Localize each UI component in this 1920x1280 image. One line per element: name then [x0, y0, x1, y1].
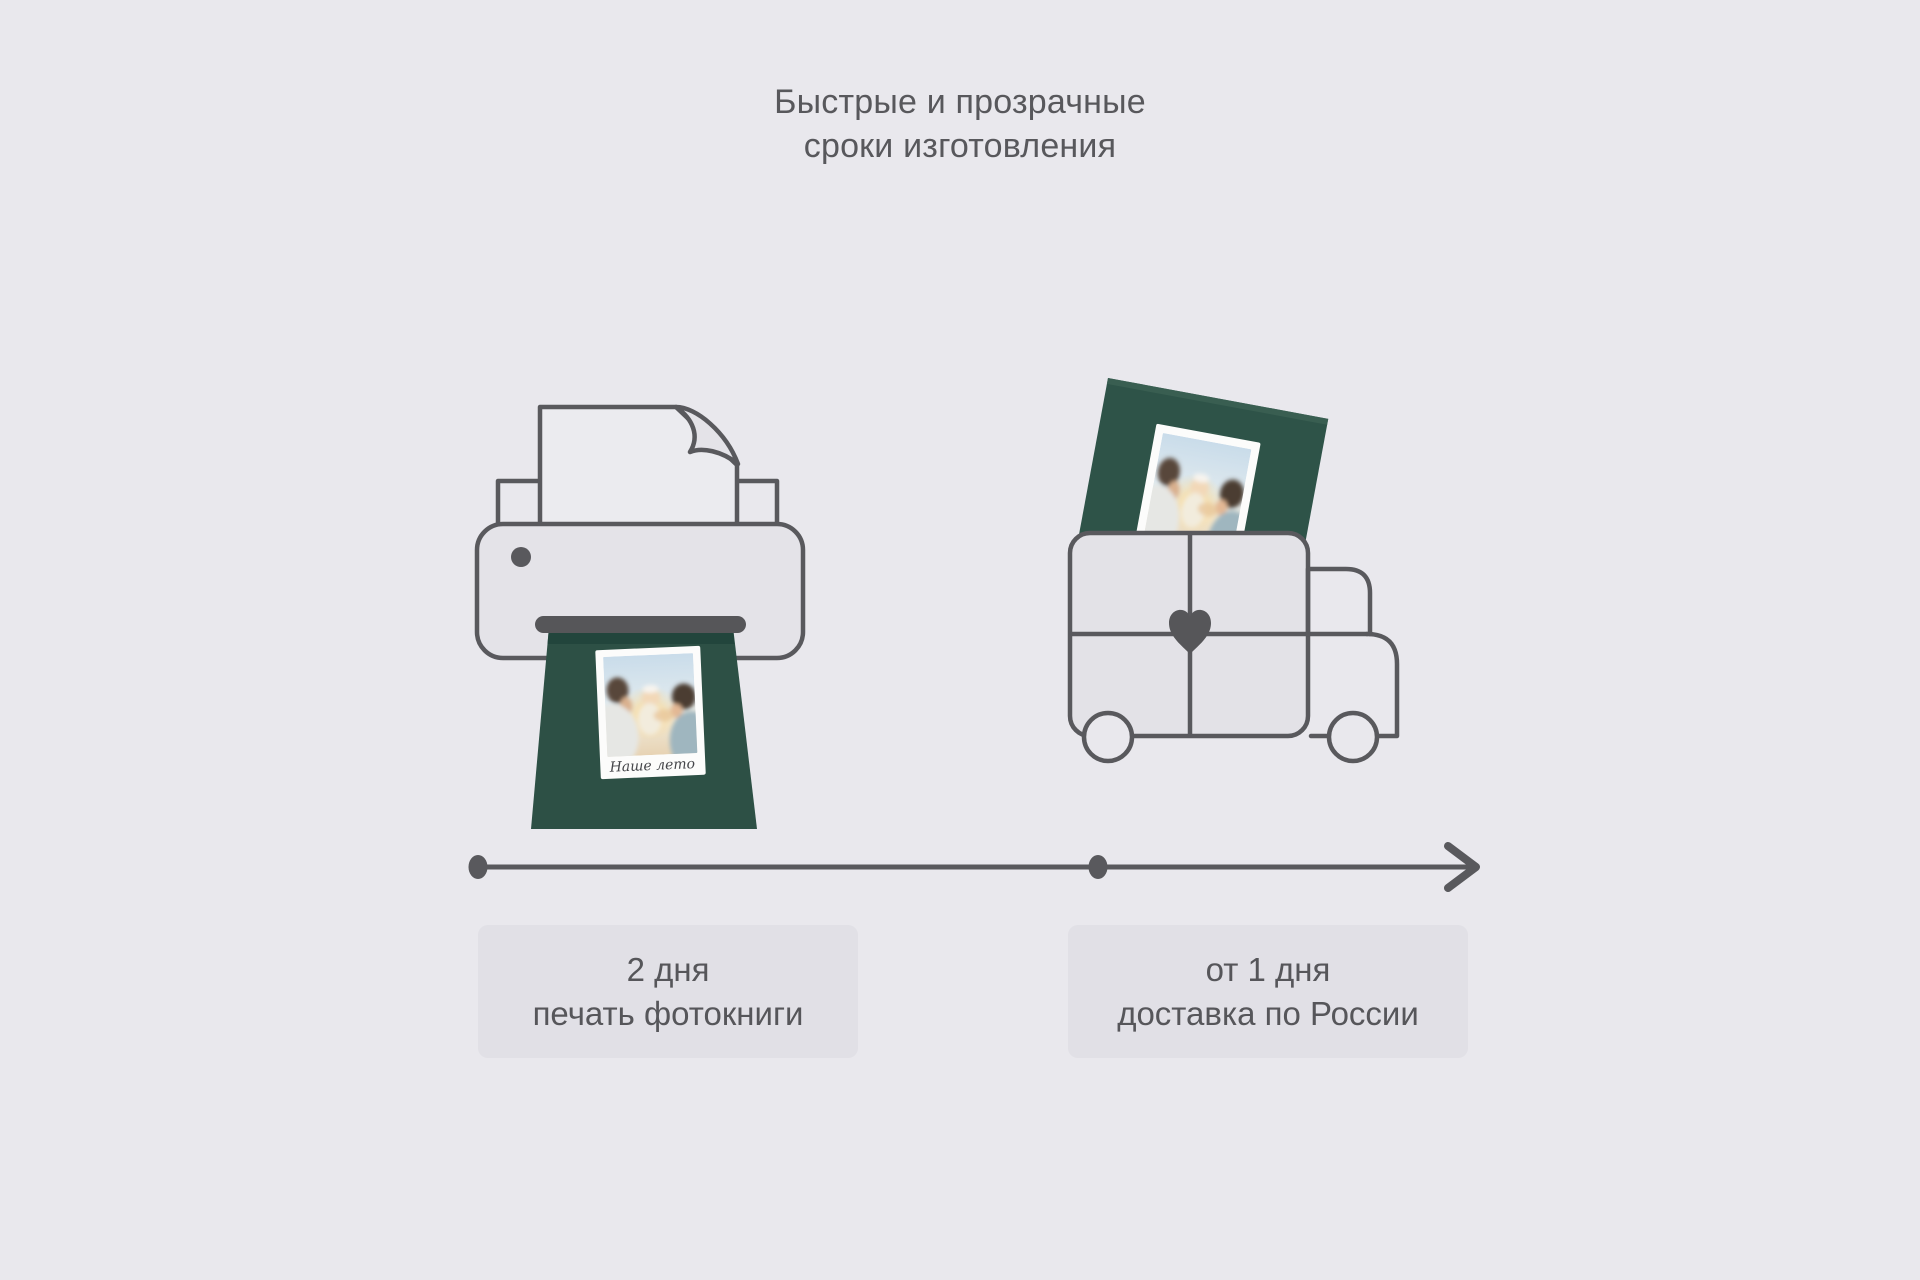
- illustration-canvas: Наше лето: [0, 0, 1920, 1280]
- step-card-delivery: от 1 дня доставка по России: [1068, 925, 1468, 1058]
- step-card-printing: 2 дня печать фотокниги: [478, 925, 858, 1058]
- timeline-dot-start: [469, 855, 488, 879]
- step-label: доставка по России: [1117, 992, 1419, 1036]
- delivery-truck-illustration: [1070, 378, 1397, 761]
- printer-slot: [535, 616, 746, 633]
- timeline-dot-mid: [1089, 855, 1108, 879]
- printer-illustration: Наше лето: [477, 407, 803, 829]
- step-label: печать фотокниги: [533, 992, 804, 1036]
- truck-cab-window: [1308, 569, 1370, 634]
- polaroid-photo: Наше лето: [587, 645, 716, 779]
- truck-wheel-front: [1329, 713, 1377, 761]
- page: Быстрые и прозрачные сроки изготовления: [0, 0, 1920, 1280]
- timeline-arrow: [469, 846, 1477, 888]
- step-duration: 2 дня: [627, 948, 710, 992]
- photobook-cover: Наше лето: [531, 627, 757, 829]
- step-duration: от 1 дня: [1206, 948, 1331, 992]
- printer-power-light: [511, 547, 531, 567]
- truck-wheel-rear: [1084, 713, 1132, 761]
